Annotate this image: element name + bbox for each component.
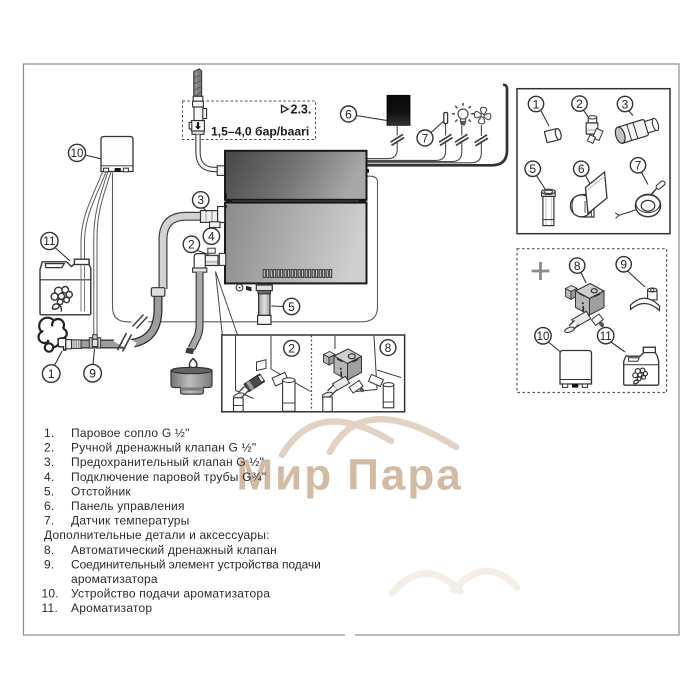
svg-text:10.: 10. <box>42 587 59 601</box>
svg-text:Дополнительные детали и аксесс: Дополнительные детали и аксессуары: <box>44 528 270 542</box>
svg-text:8: 8 <box>574 259 581 273</box>
svg-text:4: 4 <box>208 230 215 244</box>
svg-text:8: 8 <box>385 341 392 355</box>
svg-text:2.: 2. <box>44 441 54 455</box>
svg-text:ароматизатора: ароматизатора <box>71 572 158 586</box>
svg-text:Отстойник: Отстойник <box>71 484 131 498</box>
svg-text:Предохранительный клапан G ½": Предохранительный клапан G ½" <box>71 455 264 469</box>
svg-text:9: 9 <box>620 258 627 272</box>
svg-text:9: 9 <box>89 367 96 381</box>
svg-text:Ароматизатор: Ароматизатор <box>71 601 152 615</box>
svg-text:11.: 11. <box>42 601 58 615</box>
svg-text:1: 1 <box>48 367 55 381</box>
svg-text:8.: 8. <box>44 543 54 557</box>
svg-text:5: 5 <box>288 300 295 314</box>
svg-text:11: 11 <box>600 331 612 343</box>
svg-text:1.: 1. <box>44 426 54 440</box>
svg-text:2: 2 <box>188 238 195 252</box>
svg-text:3: 3 <box>197 193 204 207</box>
svg-text:1: 1 <box>533 97 540 111</box>
svg-text:2: 2 <box>288 342 295 356</box>
svg-text:Мир Пара: Мир Пара <box>237 451 463 500</box>
svg-text:5.: 5. <box>44 484 54 498</box>
svg-text:3.: 3. <box>44 455 54 469</box>
svg-text:5: 5 <box>529 162 536 176</box>
svg-text:7: 7 <box>422 131 429 145</box>
svg-text:3: 3 <box>622 97 629 111</box>
svg-text:Ручной дренажный клапан G ½": Ручной дренажный клапан G ½" <box>71 441 256 455</box>
svg-text:9.: 9. <box>44 557 54 571</box>
svg-text:6.: 6. <box>44 499 54 513</box>
svg-text:10: 10 <box>71 148 84 160</box>
svg-text:10: 10 <box>537 331 550 343</box>
svg-text:2.3.: 2.3. <box>291 102 312 116</box>
svg-text:Подключение паровой трубы G¾": Подключение паровой трубы G¾" <box>71 470 266 484</box>
svg-text:Соединительный элемент устройс: Соединительный элемент устройства подачи <box>71 557 321 571</box>
svg-text:1,5–4,0 бар/baari: 1,5–4,0 бар/baari <box>211 125 309 139</box>
svg-text:6: 6 <box>345 107 352 121</box>
svg-text:Паровое сопло G ½": Паровое сопло G ½" <box>71 426 190 440</box>
svg-text:2: 2 <box>576 97 583 111</box>
svg-text:4.: 4. <box>44 470 54 484</box>
svg-text:Датчик температуры: Датчик температуры <box>71 514 190 528</box>
svg-text:7.: 7. <box>44 514 54 528</box>
svg-text:Панель управления: Панель управления <box>71 499 185 513</box>
svg-text:Автоматический дренажный клапа: Автоматический дренажный клапан <box>71 543 277 557</box>
svg-text:6: 6 <box>578 162 585 176</box>
svg-text:Устройство подачи ароматизатор: Устройство подачи ароматизатора <box>71 587 270 601</box>
svg-text:7: 7 <box>635 159 642 173</box>
svg-text:11: 11 <box>43 236 55 248</box>
